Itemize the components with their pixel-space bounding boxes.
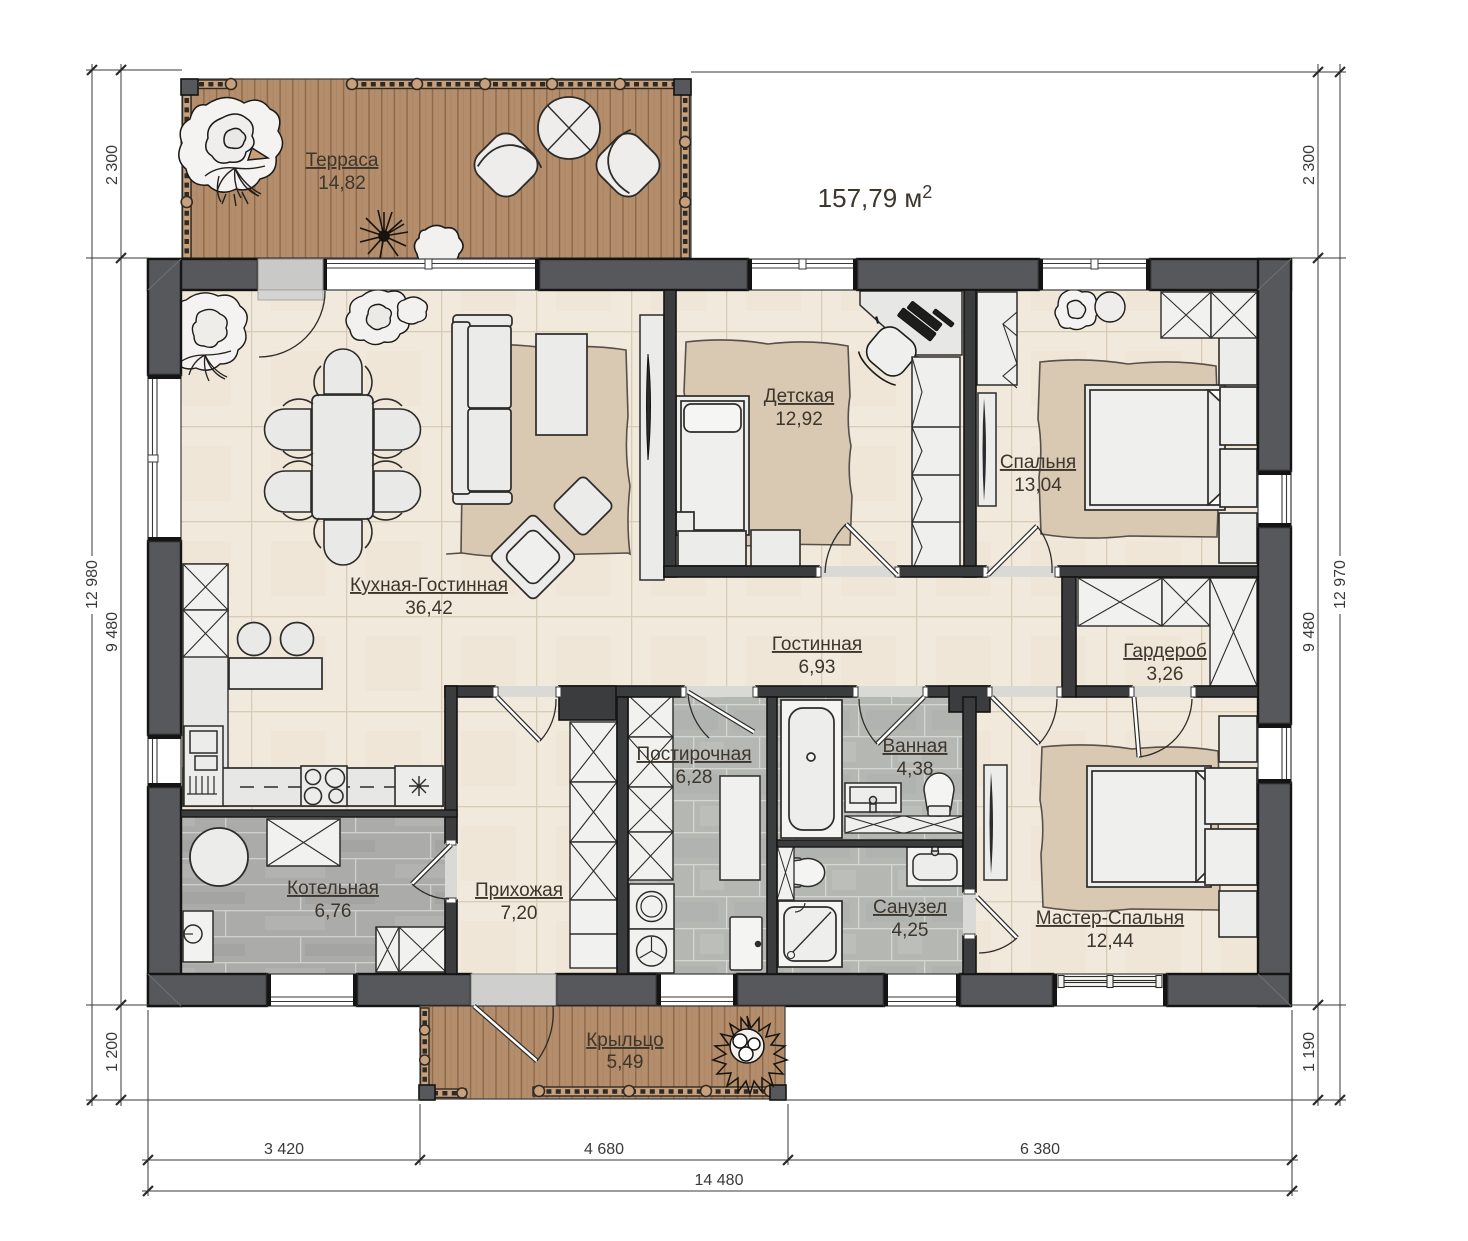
svg-text:12 970: 12 970 — [1332, 560, 1349, 609]
svg-text:14 480: 14 480 — [695, 1172, 744, 1189]
svg-text:2 300: 2 300 — [1301, 145, 1318, 185]
svg-text:5,49: 5,49 — [607, 1052, 644, 1073]
svg-text:2 300: 2 300 — [104, 145, 121, 185]
svg-text:6,76: 6,76 — [315, 901, 352, 922]
svg-text:Терраса: Терраса — [306, 150, 379, 171]
svg-text:9 480: 9 480 — [1301, 612, 1318, 652]
svg-text:36,42: 36,42 — [405, 598, 453, 619]
svg-text:6 380: 6 380 — [1020, 1141, 1060, 1158]
svg-text:12 980: 12 980 — [84, 560, 101, 609]
svg-text:3 420: 3 420 — [264, 1141, 304, 1158]
svg-text:Прихожая: Прихожая — [475, 880, 563, 901]
svg-text:9 480: 9 480 — [104, 612, 121, 652]
svg-text:Котельная: Котельная — [287, 878, 379, 899]
svg-text:6,28: 6,28 — [676, 767, 713, 788]
svg-text:7,20: 7,20 — [501, 903, 538, 924]
svg-text:Мастер-Спальня: Мастер-Спальня — [1036, 908, 1184, 929]
svg-text:Санузел: Санузел — [873, 897, 947, 918]
svg-text:Постирочная: Постирочная — [636, 744, 751, 765]
svg-text:4,38: 4,38 — [897, 759, 934, 780]
svg-text:4 680: 4 680 — [584, 1141, 624, 1158]
svg-text:Спальня: Спальня — [1000, 452, 1076, 473]
svg-text:12,44: 12,44 — [1086, 931, 1134, 952]
svg-text:Крыльцо: Крыльцо — [586, 1030, 664, 1051]
svg-text:Гостинная: Гостинная — [772, 634, 862, 655]
svg-text:1 190: 1 190 — [1301, 1032, 1318, 1072]
svg-text:13,04: 13,04 — [1014, 475, 1062, 496]
svg-text:12,92: 12,92 — [775, 409, 823, 430]
svg-text:3,26: 3,26 — [1147, 664, 1184, 685]
svg-text:6,93: 6,93 — [799, 657, 836, 678]
svg-text:4,25: 4,25 — [892, 920, 929, 941]
svg-text:Детская: Детская — [764, 386, 834, 407]
svg-text:Кухная-Гостинная: Кухная-Гостинная — [350, 575, 508, 596]
svg-text:1 200: 1 200 — [104, 1032, 121, 1072]
svg-text:14,82: 14,82 — [318, 173, 366, 194]
svg-text:157,79 м2: 157,79 м2 — [818, 182, 933, 213]
svg-text:Ванная: Ванная — [882, 736, 947, 757]
svg-text:Гардероб: Гардероб — [1123, 641, 1207, 662]
